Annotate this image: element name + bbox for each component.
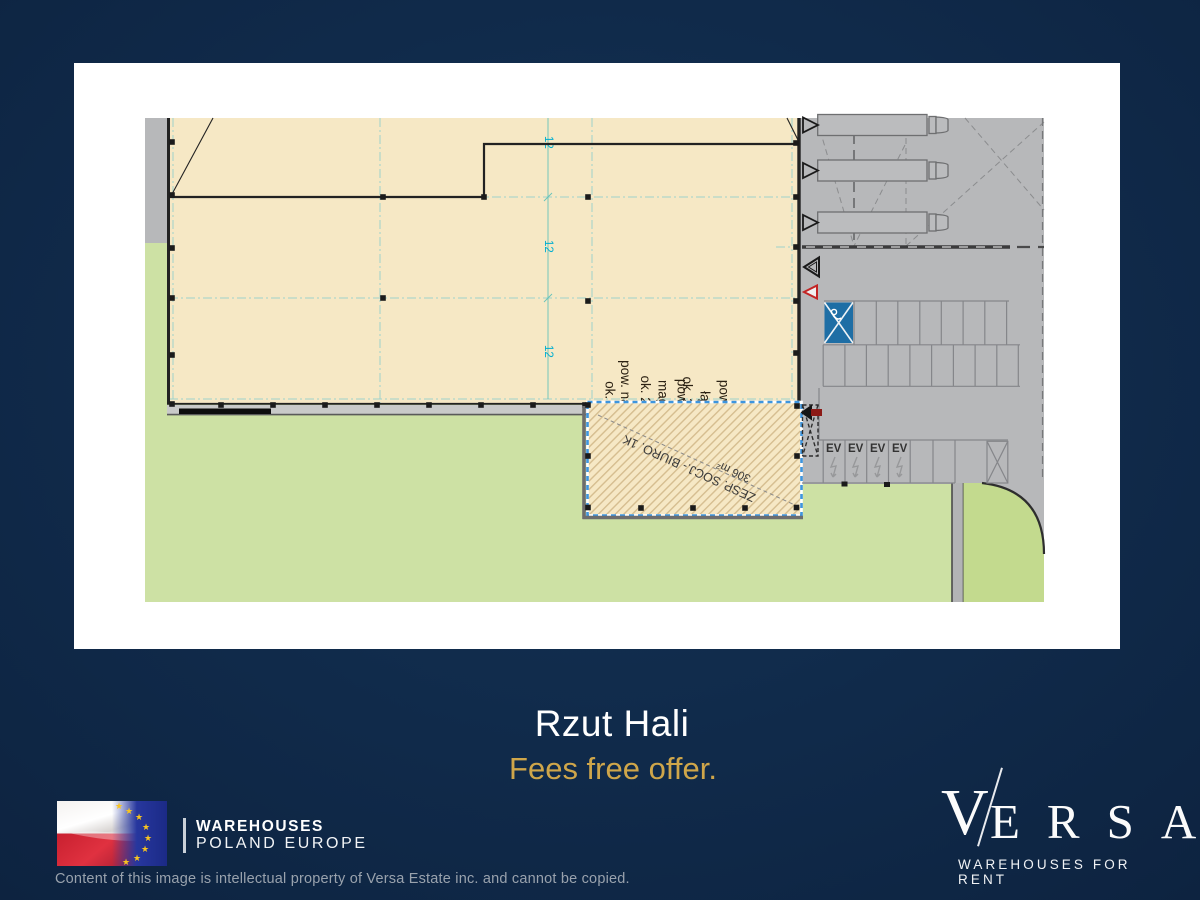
svg-text:12: 12 — [542, 136, 554, 149]
svg-text:12: 12 — [542, 345, 554, 358]
svg-text:12: 12 — [542, 240, 554, 253]
svg-text:EV: EV — [892, 443, 908, 455]
svg-text:★: ★ — [133, 853, 141, 863]
svg-text:EV: EV — [826, 443, 842, 455]
svg-text:★: ★ — [115, 801, 123, 811]
svg-text:★: ★ — [141, 844, 149, 854]
svg-text:★: ★ — [142, 822, 150, 832]
svg-text:EV: EV — [870, 443, 886, 455]
svg-text:EV: EV — [848, 443, 864, 455]
svg-text:★: ★ — [135, 812, 143, 822]
svg-text:★: ★ — [144, 833, 152, 843]
svg-text:★: ★ — [125, 806, 133, 816]
svg-text:★: ★ — [122, 857, 130, 866]
